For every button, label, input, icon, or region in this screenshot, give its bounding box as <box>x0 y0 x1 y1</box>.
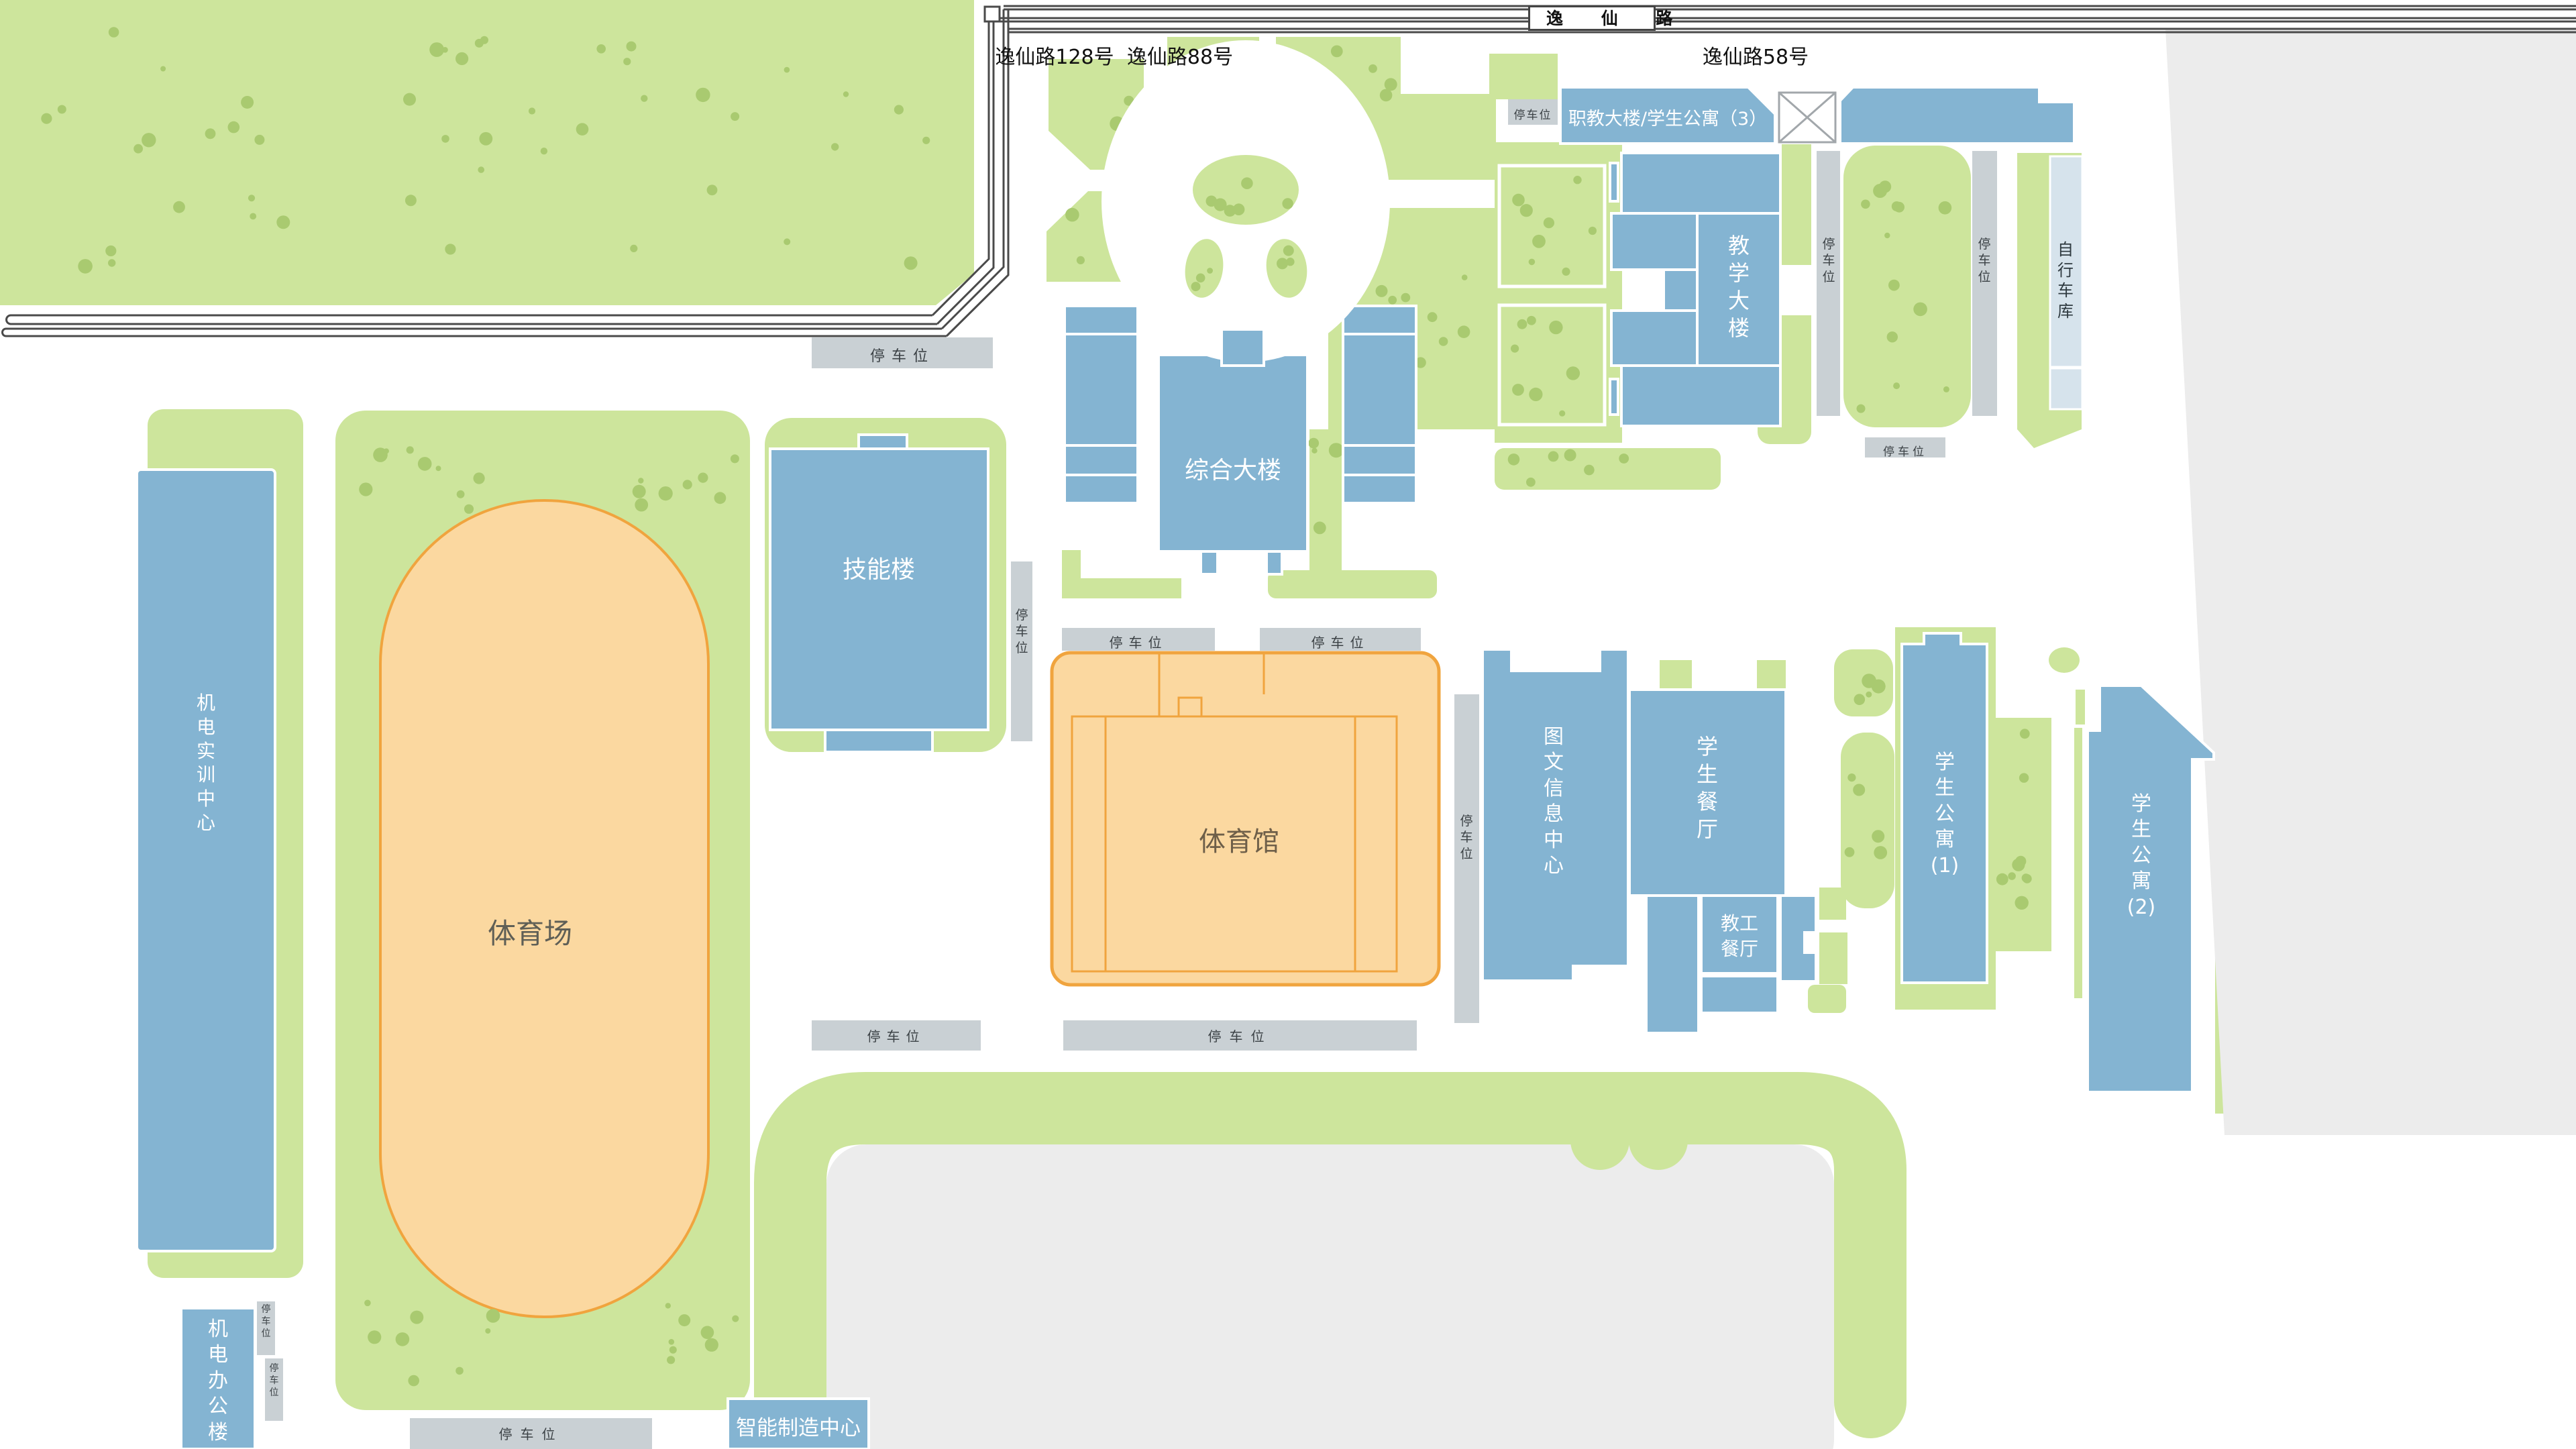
tree-dot <box>1566 366 1580 380</box>
label-tiyuguan: 体育馆 <box>1172 820 1306 859</box>
tree-dot <box>1388 296 1397 305</box>
tree-dot <box>2020 729 2030 739</box>
parking-label: 停车位 <box>1063 1026 1417 1045</box>
tree-dot <box>1401 293 1410 303</box>
tree-dot <box>1520 204 1533 217</box>
tree-dot <box>486 1309 500 1323</box>
green-dot-island <box>2049 647 2080 673</box>
lawn-east-of-jiaoxue <box>1843 146 1971 427</box>
tree-dot <box>1853 784 1865 796</box>
label-jidian-bangong: 机电办公楼 <box>202 1317 234 1446</box>
tree-dot <box>1517 319 1527 329</box>
tree-dot <box>731 454 739 463</box>
tree-dot <box>1872 830 1884 843</box>
tree-dot <box>405 195 417 206</box>
tree-dot <box>445 244 455 254</box>
label-zhineng: 智能制造中心 <box>728 1411 869 1441</box>
tree-dot <box>1866 692 1872 698</box>
tree-dot <box>1619 453 1629 464</box>
tree-dot <box>630 245 637 252</box>
tree-dot <box>1544 217 1554 228</box>
tree-dot <box>731 112 739 121</box>
open-area-south <box>826 1144 1834 1449</box>
tree-dot <box>669 1346 677 1354</box>
tree-dot <box>396 1332 410 1346</box>
parking-label: 停车位 <box>1508 105 1558 122</box>
tree-dot <box>1207 268 1213 274</box>
crossed-box <box>1779 93 1835 142</box>
tree-dot <box>407 446 414 453</box>
tree-dot <box>1887 331 1898 342</box>
tree-dot <box>1283 246 1294 256</box>
tree-dot <box>205 128 216 139</box>
label-tuwen: 图文信息中心 <box>1539 724 1568 879</box>
tree-dot <box>1241 177 1253 189</box>
road-field-band-1 <box>7 315 938 324</box>
tree-dot <box>1893 382 1900 389</box>
tree-dot <box>1191 282 1201 291</box>
parking-label: 停车位 <box>1008 607 1035 656</box>
zonghe-protrusion <box>1222 329 1264 366</box>
road-name-plate: 逸 仙 路 <box>1528 5 1656 31</box>
tree-dot <box>1996 873 2008 885</box>
tree-dot <box>478 166 484 173</box>
tree-dot <box>1385 78 1397 91</box>
tree-dot <box>1939 201 1952 215</box>
building-jineng <box>770 435 988 752</box>
parking-label: 停车位 <box>410 1424 652 1443</box>
tree-dot <box>1857 405 1866 413</box>
tree-dot <box>241 96 254 109</box>
tree-dot <box>696 88 710 102</box>
tree-dot <box>1311 448 1317 453</box>
tree-dot <box>732 1316 739 1322</box>
tree-dot <box>364 1300 371 1307</box>
tree-dot <box>894 105 904 114</box>
gym-outline <box>1052 653 1439 985</box>
lawn-top-left-field <box>0 0 974 305</box>
label-gongyu1: 学生公寓(1) <box>1926 750 1964 879</box>
tree-dot <box>455 52 468 65</box>
label-jineng: 技能楼 <box>805 550 953 585</box>
green-canting-tab-1 <box>1660 660 1692 690</box>
tree-dot <box>410 1311 423 1324</box>
lawn-jiaoxue-east-1 <box>1782 144 1811 265</box>
tree-dot <box>368 1330 381 1344</box>
tree-dot <box>1562 268 1570 276</box>
green-jiaogong-1 <box>1819 888 1846 920</box>
label-jidian-shixun: 机电实训中心 <box>190 691 222 835</box>
tree-dot <box>714 492 727 504</box>
tree-dot <box>596 44 606 54</box>
tree-dot <box>1548 451 1559 462</box>
parking-label: 停车位 <box>265 1363 283 1399</box>
tree-dot <box>635 498 648 512</box>
green-gongyu2-strip-1 <box>2076 690 2085 724</box>
tree-dot <box>667 1356 675 1364</box>
tree-dot <box>705 1338 718 1352</box>
tree-dot <box>78 259 93 274</box>
map-canvas <box>0 0 2576 1449</box>
tree-dot <box>455 1367 464 1375</box>
label-zonghe: 综合大楼 <box>1159 451 1307 486</box>
tree-dot <box>698 473 708 483</box>
tree-dot <box>1862 674 1876 688</box>
tree-dot <box>638 478 643 483</box>
tree-dot <box>1564 449 1576 462</box>
label-xuesheng-canting: 学生餐厅 <box>1692 733 1723 843</box>
tree-dot <box>641 95 647 102</box>
tree-dot <box>1282 198 1293 209</box>
tree-dot <box>1376 285 1388 297</box>
tree-dot <box>248 195 255 201</box>
tree-dot <box>1943 386 1949 392</box>
open-area-east <box>2165 28 2576 1135</box>
tree-dot <box>464 504 474 514</box>
tree-dot <box>1573 176 1581 184</box>
tree-dot <box>250 213 256 220</box>
tree-dot <box>2015 856 2026 867</box>
road-gate-marker <box>985 7 1000 21</box>
tree-dot <box>701 1326 714 1340</box>
tree-dot <box>403 93 416 106</box>
zonghe-west-wing <box>1065 306 1138 503</box>
tree-dot <box>831 143 839 150</box>
road-top-lines <box>994 6 2576 32</box>
parking-label: 停车位 <box>1865 442 1945 459</box>
tree-dot <box>659 486 673 500</box>
zonghe-foot-1 <box>1201 551 1218 574</box>
tree-dot <box>1847 773 1856 782</box>
tree-dot <box>1589 227 1597 235</box>
tree-dot <box>429 42 444 57</box>
tree-dot <box>228 121 240 133</box>
tree-dot <box>1065 208 1079 222</box>
tree-dot <box>276 215 290 229</box>
tree-dot <box>541 148 547 154</box>
green-canting-tab-2 <box>1757 660 1786 690</box>
label-jiaoxue: 教学大楼 <box>1719 232 1759 342</box>
tree-dot <box>1854 694 1866 705</box>
tree-dot <box>1559 411 1565 417</box>
tree-dot <box>1313 522 1326 535</box>
green-scallop-2 <box>1629 1111 1688 1170</box>
tree-dot <box>1331 46 1343 58</box>
green-scallop-1 <box>1570 1111 1629 1170</box>
tree-dot <box>1845 847 1855 857</box>
tree-dot <box>633 485 646 498</box>
tree-dot <box>707 184 718 195</box>
stadium-track <box>380 500 708 1317</box>
tree-dot <box>1529 388 1542 401</box>
zonghe-east-wing <box>1343 306 1416 503</box>
label-tiyuchang: 体育场 <box>463 911 597 952</box>
tree-dot <box>133 144 143 154</box>
label-jiaogong-canting: 教工餐厅 <box>1717 911 1762 962</box>
gymnasium <box>1052 653 1439 985</box>
tree-dot <box>1462 274 1468 280</box>
plaza-oval-island <box>1193 155 1299 225</box>
parking-label: 停车位 <box>257 1304 275 1340</box>
parking-label: 停车位 <box>1815 236 1842 285</box>
tree-dot <box>1584 465 1595 476</box>
tree-dot <box>1508 453 1520 466</box>
green-tree-blob-2 <box>1841 733 1894 908</box>
tree-dot <box>2015 896 2029 910</box>
tree-dot <box>1512 194 1525 207</box>
tree-dot <box>160 66 166 72</box>
tree-dot <box>408 1375 419 1387</box>
tree-dot <box>436 466 441 471</box>
tree-dot <box>1512 384 1524 396</box>
building-zhijiao-east <box>1840 87 2074 144</box>
tree-dot <box>529 107 535 114</box>
tree-dot <box>904 256 918 270</box>
tree-dot <box>142 133 156 147</box>
tree-dot <box>627 42 637 52</box>
tree-dot <box>1527 316 1536 325</box>
tree-dot <box>105 246 116 256</box>
tree-dot <box>2008 872 2016 880</box>
tree-dot <box>441 135 449 143</box>
tree-dot <box>58 105 66 114</box>
tree-dot <box>475 39 484 48</box>
tree-dot <box>669 1339 675 1345</box>
tree-dot <box>843 91 849 97</box>
parking-label: 停车位 <box>1062 632 1215 651</box>
parking-label: 停车位 <box>822 344 983 366</box>
tree-dot <box>1458 325 1470 338</box>
parking-label: 停车位 <box>812 1026 981 1045</box>
tree-dot <box>41 113 52 124</box>
green-zonghe-sw-2 <box>1062 578 1181 598</box>
tree-dot <box>1884 233 1890 238</box>
zonghe-foot-2 <box>1267 551 1282 574</box>
parking-label: 停车位 <box>1453 813 1480 862</box>
tree-dot <box>1529 259 1536 266</box>
tree-dot <box>1888 280 1900 291</box>
tree-dot <box>623 58 631 65</box>
tree-dot <box>576 123 589 136</box>
tree-dot <box>1428 312 1438 322</box>
tree-dot <box>1879 180 1891 193</box>
tree-dot <box>2023 874 2032 883</box>
tree-dot <box>1368 64 1377 73</box>
tree-dot <box>173 201 185 213</box>
tree-dot <box>457 490 465 498</box>
tree-dot <box>1077 256 1085 264</box>
tree-dot <box>2019 773 2029 782</box>
tree-dot <box>665 1303 671 1308</box>
label-gongyu2: 学生公寓(2) <box>2123 792 2160 920</box>
tree-dot <box>1549 321 1562 334</box>
tree-dot <box>678 1314 690 1326</box>
tree-dot <box>108 259 115 266</box>
tree-dot <box>1224 205 1236 217</box>
tree-dot <box>1277 258 1288 269</box>
label-zhijiao: 职教大楼/学生公寓（3） <box>1560 104 1775 130</box>
tree-dot <box>479 132 492 146</box>
parking-label: 停车位 <box>1260 632 1421 651</box>
tree-dot <box>384 448 389 453</box>
tree-dot <box>474 472 485 484</box>
address-58: 逸仙路58号 <box>1675 40 1836 70</box>
green-jiaogong-2 <box>1819 932 1847 984</box>
label-zixingche: 自行车库 <box>2051 239 2080 322</box>
green-zonghe-se-band <box>1268 570 1437 598</box>
tree-dot <box>1894 202 1904 213</box>
tree-dot <box>359 482 372 496</box>
tree-dot <box>784 238 790 245</box>
tree-dot <box>784 67 790 73</box>
tree-dot <box>418 457 432 471</box>
green-jiaogong-3 <box>1808 985 1846 1013</box>
tree-dot <box>109 27 119 38</box>
tree-dot <box>1913 303 1927 317</box>
tree-dot <box>1196 274 1205 283</box>
campus-map: 逸 仙 路 逸仙路128号 逸仙路88号 逸仙路58号 职教大楼/学生公寓（3）… <box>0 0 2576 1449</box>
tree-dot <box>1532 235 1546 248</box>
tree-dot <box>1329 443 1344 458</box>
green-gongyu2-strip-2 <box>2074 728 2082 998</box>
tree-dot <box>1439 337 1448 346</box>
tree-dot <box>1526 478 1536 487</box>
tree-dot <box>1861 200 1870 209</box>
road-field-band-2 <box>3 329 947 336</box>
building-jidian-shixun <box>137 470 275 1251</box>
address-88: 逸仙路88号 <box>1099 40 1260 70</box>
tree-dot <box>1874 846 1887 859</box>
tree-dot <box>683 480 692 489</box>
tree-dot <box>922 137 930 144</box>
tree-dot <box>485 1328 490 1334</box>
parking-label: 停车位 <box>1971 236 1998 285</box>
tree-dot <box>1380 89 1393 102</box>
tree-dot <box>1511 345 1519 353</box>
green-zhijiao-west <box>1489 54 1558 99</box>
tree-dot <box>1308 438 1319 449</box>
tree-dot <box>254 135 264 145</box>
